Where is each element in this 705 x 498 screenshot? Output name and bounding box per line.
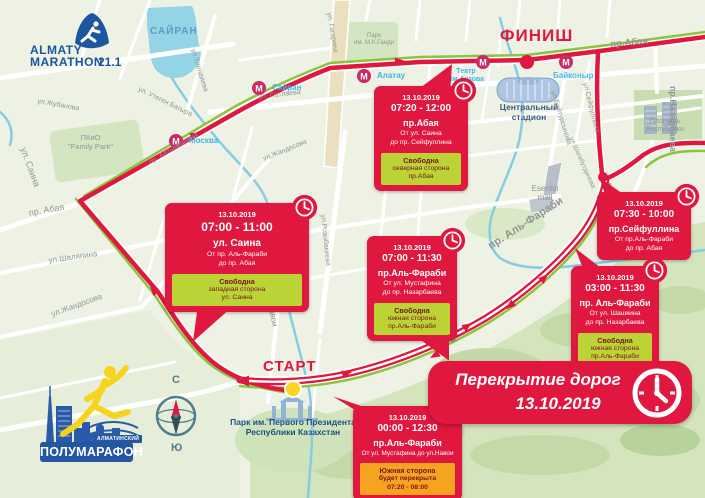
banner-clock-icon — [630, 366, 684, 420]
closure-range: От пр. Аль-Фараби до пр. Абая — [170, 251, 304, 269]
closure-note-title: Свободна — [174, 277, 300, 286]
metro-icon-letter: М — [360, 71, 368, 81]
place-label-republic-square: Площадь Республики — [634, 118, 696, 134]
finish-marker: ФИНИШ — [500, 26, 573, 46]
closure-time: 07:00 - 11:30 — [372, 253, 452, 264]
closure-street: пр.Сейфуллина — [602, 224, 686, 234]
closure-note: Свободнасеверная сторона пр.Абая — [381, 153, 461, 185]
closure-range: От ул. Мустафина до ул.Навои — [358, 450, 457, 458]
lake-label: САЙРАН — [150, 26, 198, 38]
road-closure-banner: Перекрытие дорог 13.10.2019 — [428, 361, 692, 424]
park-label-family-park: ПКиО "Family Park" — [48, 134, 133, 151]
almaty-marathon-logo: ALMATY MARATHON 21.1 — [26, 14, 136, 70]
metro-icon-letter: М — [562, 57, 570, 67]
closure-note-title: Свободна — [376, 306, 448, 315]
clock-icon — [291, 194, 318, 221]
metro-icon-letter: М — [255, 83, 263, 93]
street-label-nazarbaeva: пр.Назарбаева — [668, 86, 678, 152]
start-point-dot — [285, 381, 301, 397]
half-marathon-logo: АЛМАТИНСКИЙ ПОЛУМАРАФОН — [38, 358, 140, 468]
closure-note-body: южная сторона пр.Аль-Фараби — [388, 315, 436, 330]
closure-time: 07:00 - 11:00 — [170, 220, 304, 234]
closure-range: От ул. Мустафина до пр. Назарбаева — [372, 280, 452, 298]
closure-date: 13.10.2019 — [170, 210, 304, 219]
compass-north-label: С — [172, 374, 180, 386]
metro-label-alatau: Алатау — [377, 71, 405, 80]
road-closure-map-poster: М М М М М САЙРАН ул.Тлендиева ул. Утеген… — [0, 0, 705, 498]
closure-note: Свободнаюжная сторона пр.Аль-Фараби — [578, 333, 652, 365]
park-label-first-president: Парк им. Первого Президента Республики К… — [228, 418, 358, 438]
closure-range: От ул. Шашкина до пр. Назарбаева — [576, 310, 654, 328]
closure-note-body: южная сторона пр.Аль-Фараби — [591, 345, 639, 360]
closure-time: 07:20 - 12:00 — [379, 103, 463, 114]
compass-south-label: Ю — [171, 442, 182, 454]
clock-icon — [673, 183, 700, 210]
clock-icon — [450, 77, 477, 104]
closure-note-title: Южная сторона — [362, 466, 453, 475]
closure-street: пр.Абая — [379, 118, 463, 128]
closure-street: пр. Аль-Фараби — [576, 298, 654, 308]
closure-callout-seifullina: 13.10.2019 07:30 - 10:00 пр.Сейфуллина О… — [597, 192, 691, 260]
start-marker: СТАРТ — [263, 358, 316, 375]
closure-range: От ул. Саина до пр. Сейфуллина — [379, 130, 463, 148]
metro-label-moskva: Москва — [189, 136, 218, 145]
metro-label-baikonur: Байконыр — [553, 71, 593, 80]
closure-note-body: северная сторона пр.Абая — [393, 165, 450, 180]
place-label-esentai-mall: Esentai mall — [524, 184, 566, 202]
closure-callout-saina: 13.10.2019 07:00 - 11:00 ул. Саина От пр… — [165, 203, 309, 312]
closure-note-body: западная сторона ул. Саина — [209, 286, 266, 301]
closure-range: От пр.Аль-Фараби до пр. Абая — [602, 236, 686, 254]
closure-time: 03:00 - 11:30 — [576, 283, 654, 294]
clock-icon — [439, 227, 466, 254]
half-marathon-title: ПОЛУМАРАФОН — [40, 442, 133, 462]
closure-note: Свободназападная сторона ул. Саина — [172, 274, 302, 306]
clock-icon — [641, 257, 668, 284]
closure-time: 07:30 - 10:00 — [602, 209, 686, 220]
metro-icon-letter: М — [479, 57, 487, 67]
logo-line-marathon: MARATHON — [30, 55, 103, 69]
closure-note: Свободнаюжная сторона пр.Аль-Фараби — [374, 303, 450, 335]
closure-note-body: будет перекрыта 07:20 - 08:00 — [379, 475, 436, 490]
closure-street: пр.Аль-Фараби — [372, 268, 452, 278]
banner-date: 13.10.2019 — [468, 394, 648, 414]
closure-callout-al-farabi-center: 13.10.2019 07:00 - 11:30 пр.Аль-Фараби О… — [367, 236, 457, 341]
finish-point-dot — [520, 55, 534, 69]
closure-note-title: Свободна — [383, 156, 459, 165]
closure-note: Южная сторонабудет перекрыта 07:20 - 08:… — [360, 463, 455, 495]
closure-callout-al-farabi-east: 13.10.2019 03:00 - 11:30 пр. Аль-Фараби … — [571, 266, 659, 371]
closure-street: пр.Аль-Фараби — [358, 438, 457, 448]
metro-label-sairan: Сайран — [272, 83, 301, 92]
closure-callout-abaya: 13.10.2019 07:20 - 12:00 пр.Абая От ул. … — [374, 86, 468, 191]
logo-distance: 21.1 — [98, 55, 121, 69]
closure-time: 00:00 - 12:30 — [358, 423, 457, 434]
closure-note-title: Свободна — [580, 336, 650, 345]
park-label-gandhi: Парк им. М.К.Ганди — [346, 32, 402, 46]
banner-title: Перекрытие дорог — [440, 370, 636, 390]
closure-street: ул. Саина — [170, 238, 304, 249]
